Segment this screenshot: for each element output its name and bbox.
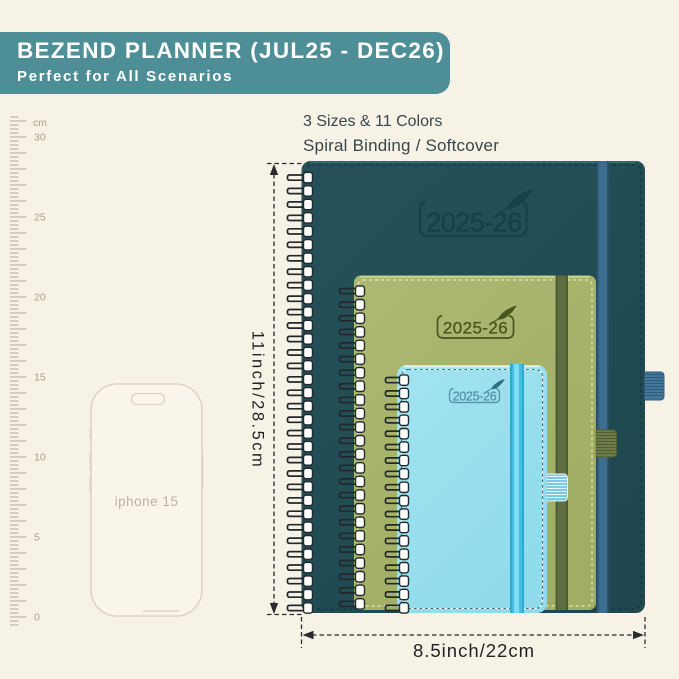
svg-text:iphone 15: iphone 15 (115, 494, 179, 509)
svg-text:cm: cm (33, 117, 47, 129)
svg-text:25: 25 (34, 212, 46, 224)
svg-text:11inch/28.5cm: 11inch/28.5cm (249, 331, 267, 470)
svg-text:Spiral Binding / Softcover: Spiral Binding / Softcover (303, 136, 499, 155)
svg-text:3 Sizes & 11 Colors: 3 Sizes & 11 Colors (303, 113, 442, 130)
svg-text:10: 10 (34, 452, 46, 464)
svg-text:2025-26: 2025-26 (443, 319, 508, 338)
svg-text:2025-26: 2025-26 (426, 208, 522, 238)
svg-text:2025-26: 2025-26 (453, 390, 497, 404)
svg-text:30: 30 (34, 132, 46, 144)
svg-text:20: 20 (34, 292, 46, 304)
svg-text:0: 0 (34, 612, 40, 624)
svg-text:15: 15 (34, 372, 46, 384)
svg-text:5: 5 (34, 532, 40, 544)
svg-text:8.5inch/22cm: 8.5inch/22cm (413, 640, 535, 661)
